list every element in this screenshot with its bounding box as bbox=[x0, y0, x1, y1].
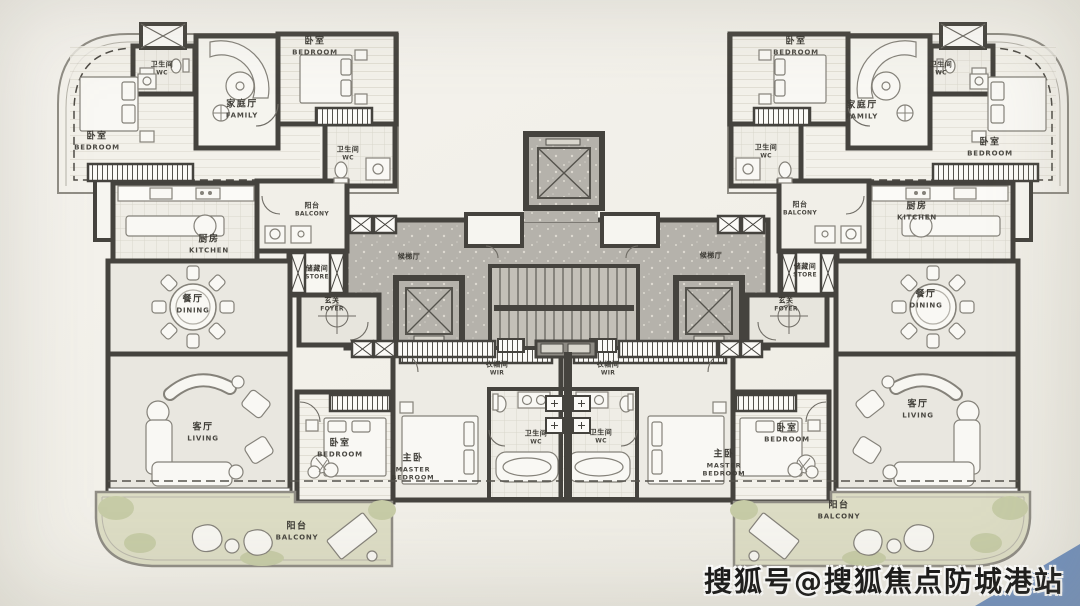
balcony-south bbox=[96, 492, 396, 566]
elevator-right bbox=[676, 278, 742, 344]
shaft-boxes-bottom bbox=[352, 339, 762, 357]
floorplan-drawing bbox=[0, 0, 1080, 606]
stairwell bbox=[490, 266, 638, 348]
elevator-left bbox=[396, 278, 462, 344]
shaft-box bbox=[141, 24, 185, 48]
floorplan-photo: 卧室 BEDROOM 卫生间WC 家庭厅FAMILY 卧室BEDROOM 卫生间… bbox=[0, 0, 1080, 606]
watermark-text: 搜狐号@搜狐焦点防城港站 bbox=[704, 560, 1064, 600]
party-wall bbox=[564, 352, 572, 500]
